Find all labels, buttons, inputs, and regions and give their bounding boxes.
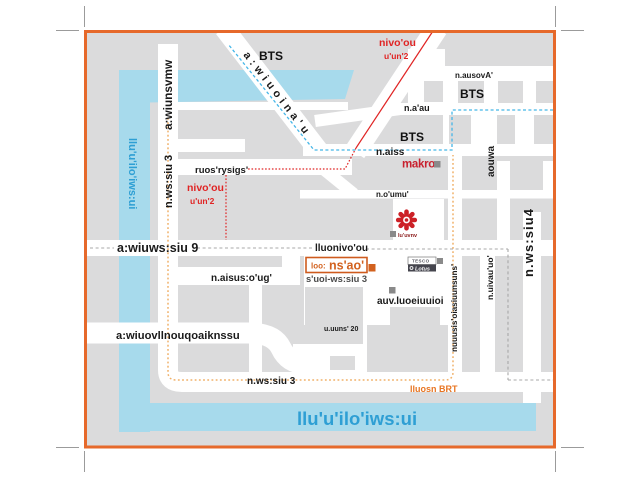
svg-text:aouwa: aouwa — [486, 145, 497, 177]
svg-text:a:wiunsvmw: a:wiunsvmw — [161, 59, 175, 130]
svg-text:n.ws:siu 3: n.ws:siu 3 — [163, 155, 175, 208]
svg-text:a:wiuovllnouqoaiknssu: a:wiuovllnouqoaiknssu — [116, 330, 240, 342]
svg-text:n.aisus:o'ug': n.aisus:o'ug' — [211, 273, 272, 284]
svg-text:n.o'umu': n.o'umu' — [376, 190, 409, 199]
svg-text:BTS: BTS — [259, 49, 283, 63]
svg-text:Lotus: Lotus — [415, 267, 430, 273]
svg-text:u'un'2: u'un'2 — [384, 51, 409, 61]
svg-text:TESCO: TESCO — [412, 259, 430, 264]
svg-text:u.uuns' 20: u.uuns' 20 — [324, 326, 358, 333]
svg-text:nivo'ou: nivo'ou — [187, 182, 224, 194]
svg-text:lu'uvnv: lu'uvnv — [398, 233, 418, 239]
svg-text:llu'u'ilo'iws:ui: llu'u'ilo'iws:ui — [126, 138, 138, 209]
svg-text:lluosn BRT: lluosn BRT — [410, 384, 458, 394]
svg-text:ns'ao': ns'ao' — [329, 259, 364, 273]
svg-text:ruos'rysigs': ruos'rysigs' — [195, 165, 248, 176]
svg-text:nivo'ou: nivo'ou — [379, 37, 416, 49]
svg-text:n.ws:siu4: n.ws:siu4 — [521, 208, 536, 277]
svg-text:a:wiuws:siu 9: a:wiuws:siu 9 — [117, 241, 198, 255]
svg-text:lluonivo'ou: lluonivo'ou — [315, 243, 368, 254]
svg-text:n.aiss: n.aiss — [376, 147, 405, 158]
svg-text:auv.luoeiuuioi: auv.luoeiuuioi — [377, 296, 444, 307]
svg-text:makro: makro — [402, 159, 435, 171]
svg-text:loo:: loo: — [311, 262, 326, 271]
svg-text:u'un'2: u'un'2 — [190, 196, 215, 206]
svg-text:BTS: BTS — [400, 130, 424, 144]
svg-text:nuuusis'oiasiuunsuns': nuuusis'oiasiuunsuns' — [450, 264, 459, 352]
svg-text:n.ausovA': n.ausovA' — [455, 71, 493, 80]
svg-text:BTS: BTS — [460, 87, 484, 101]
svg-text:n.a'au: n.a'au — [404, 103, 430, 113]
svg-text:n.uivau'uo': n.uivau'uo' — [485, 255, 495, 300]
svg-text:n.ws:siu 3: n.ws:siu 3 — [247, 376, 296, 387]
svg-text:llu'u'ilo'iws:ui: llu'u'ilo'iws:ui — [297, 408, 417, 429]
svg-text:s'uoi-ws:siu 3: s'uoi-ws:siu 3 — [306, 274, 367, 284]
